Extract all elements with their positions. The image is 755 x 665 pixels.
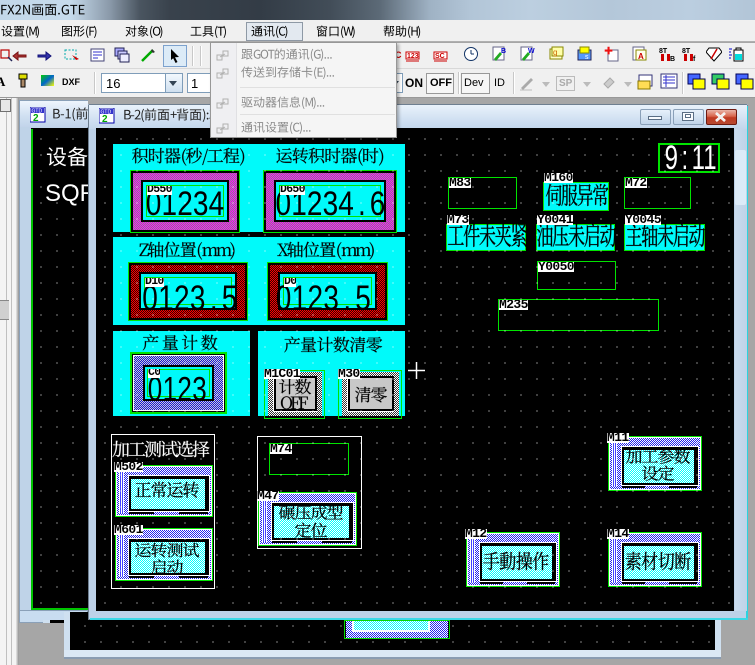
svg-text:2: 2: [33, 113, 39, 123]
svg-text:SC: SC: [435, 53, 445, 60]
svg-text:f: f: [693, 56, 696, 62]
svg-text:A: A: [638, 52, 644, 61]
svg-text:B: B: [501, 48, 506, 55]
svg-text:W: W: [528, 48, 535, 55]
svg-text:2: 2: [102, 114, 108, 124]
svg-text:8T: 8T: [682, 48, 691, 55]
svg-text:A: A: [0, 74, 6, 89]
svg-text:B: B: [670, 56, 675, 62]
svg-text:8T: 8T: [659, 48, 668, 55]
svg-text:g: g: [553, 48, 557, 57]
svg-text:DXF: DXF: [62, 77, 81, 87]
svg-text:123: 123: [407, 53, 419, 60]
svg-text:s: s: [585, 54, 589, 61]
